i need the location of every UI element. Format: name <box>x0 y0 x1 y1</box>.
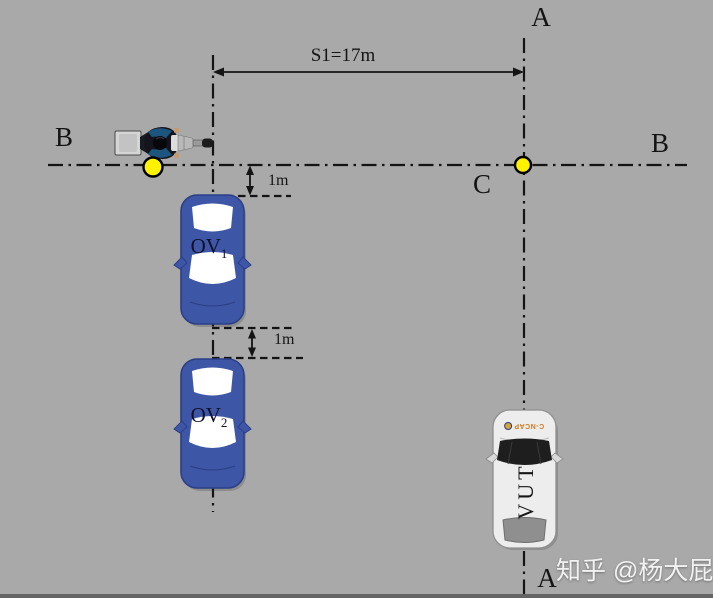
s1-dimension-arrow <box>213 68 524 77</box>
diagram-graphics <box>0 0 713 598</box>
cncap-logo: C-NCAP <box>504 422 544 430</box>
s1-dimension-label: S1=17m <box>283 46 403 65</box>
zhihu-watermark: 知乎 @杨大屁 <box>556 551 713 587</box>
yellow-dot-point-c <box>515 157 531 173</box>
gap-front-label: 1m <box>268 173 288 189</box>
bottom-border-strip <box>0 594 713 598</box>
ov1-label-sub: 1 <box>221 246 228 261</box>
label-b-left: B <box>50 124 78 151</box>
ov1-label: OV1 <box>174 236 244 260</box>
label-c: C <box>468 171 496 198</box>
label-a-top: A <box>527 4 555 31</box>
cncap-emblem-icon <box>504 422 512 430</box>
cncap-logo-text: C-NCAP <box>514 422 544 429</box>
yellow-dot-motorcycle <box>144 158 163 177</box>
label-b-right: B <box>646 130 674 157</box>
ov1-car <box>174 195 251 327</box>
ov2-label: OV2 <box>174 405 244 429</box>
aeb-test-scenario-diagram: A A B B C S1=17m 1m 1m OV1 OV2 VUT C-NCA… <box>0 0 713 598</box>
ov1-label-text: OV <box>191 234 221 258</box>
ov2-label-text: OV <box>191 403 221 427</box>
ov2-label-sub: 2 <box>221 415 228 430</box>
motorcycle-icon <box>115 127 213 159</box>
vut-label: VUT <box>513 462 539 519</box>
gap-between-label: 1m <box>274 332 294 348</box>
